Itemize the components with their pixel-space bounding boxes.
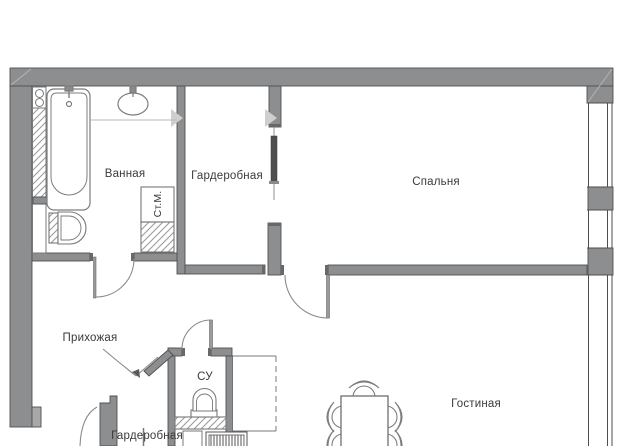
- sink-faucet-icon: [130, 86, 136, 93]
- walls: [10, 68, 613, 446]
- cabinet-box: [183, 431, 202, 446]
- room-label-hallway: Прихожая: [63, 332, 118, 344]
- closet-dashed: [233, 356, 276, 431]
- wall-bathroom-bottom-left: [32, 253, 90, 261]
- wall-left: [10, 86, 32, 427]
- wall-bedroom-bottom: [328, 265, 587, 275]
- watermark-artifact: [171, 109, 277, 127]
- door-sliding-wardrobe: [269, 127, 279, 200]
- wc-hatched-strip: [175, 417, 226, 429]
- bathtub: [47, 86, 90, 210]
- wall-left-notch: [32, 407, 41, 427]
- washing-machine-label: Ст.М.: [152, 191, 164, 218]
- chair: [349, 381, 379, 397]
- room-label-wardrobe-top: Гардеробная: [191, 170, 263, 182]
- room-label-bedroom: Спальня: [412, 176, 460, 188]
- toilet-wc: [175, 389, 226, 430]
- riser-pipe-icon: [36, 99, 44, 107]
- wall-wardrobe-bedroom-stub: [268, 223, 281, 275]
- floor-plan-drawing: [0, 0, 640, 446]
- dining-set: [327, 381, 402, 446]
- door-bathroom: [94, 257, 135, 298]
- riser-pipe-icon: [36, 90, 44, 98]
- room-label-wardrobe-bottom: Гардеробная: [111, 430, 183, 442]
- wall-window-pier-2: [588, 248, 613, 275]
- shaft-hatched: [141, 222, 174, 252]
- wall-wc-top-right: [211, 348, 232, 356]
- door-wc: [182, 320, 213, 349]
- duct-box: [33, 204, 47, 253]
- bathroom-sink: [90, 86, 177, 120]
- room-label-bathroom: Ванная: [105, 168, 146, 180]
- radiator-fins-icon: [209, 435, 244, 446]
- wall-corner-top-right: [587, 86, 613, 103]
- shaft-hatched: [33, 108, 47, 197]
- toilet-bathroom: [49, 212, 86, 244]
- room-label-living-room: Гостиная: [451, 398, 501, 410]
- wall-bathroom-bottom-right: [134, 253, 177, 261]
- door-wardrobe-bottom: [80, 407, 97, 446]
- door-bedroom: [285, 275, 330, 318]
- window-band: [587, 103, 613, 446]
- wall-wc-right: [226, 356, 233, 432]
- toilet-tank: [49, 213, 58, 243]
- wall-hall-top: [185, 265, 265, 274]
- sliding-panel: [271, 136, 277, 183]
- below-wc-units: [183, 431, 247, 446]
- dining-table: [341, 396, 388, 446]
- service-shaft: [33, 87, 47, 253]
- room-label-wc: СУ: [197, 371, 213, 383]
- wall-window-pier-1: [588, 187, 613, 210]
- wall-bathroom-wardrobe: [177, 86, 185, 274]
- floor-plan: Ванная Гардеробная Спальня Прихожая СУ Г…: [0, 0, 640, 446]
- bathtub-faucet-icon: [65, 86, 73, 91]
- wall-jamb-caps: [90, 124, 328, 356]
- wall-top: [10, 68, 613, 86]
